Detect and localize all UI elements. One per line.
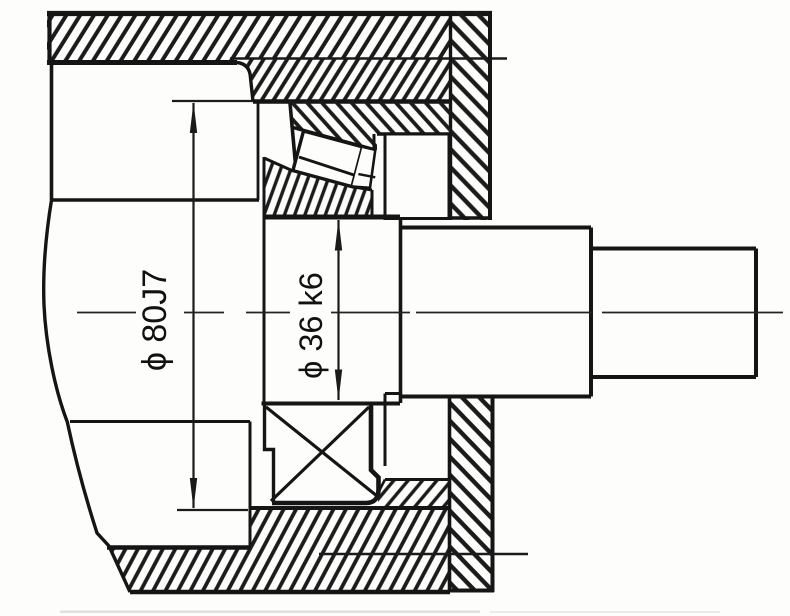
svg-text:ϕ 36 k6: ϕ 36 k6 (293, 272, 329, 379)
svg-text:ϕ 80J7: ϕ 80J7 (136, 269, 174, 371)
